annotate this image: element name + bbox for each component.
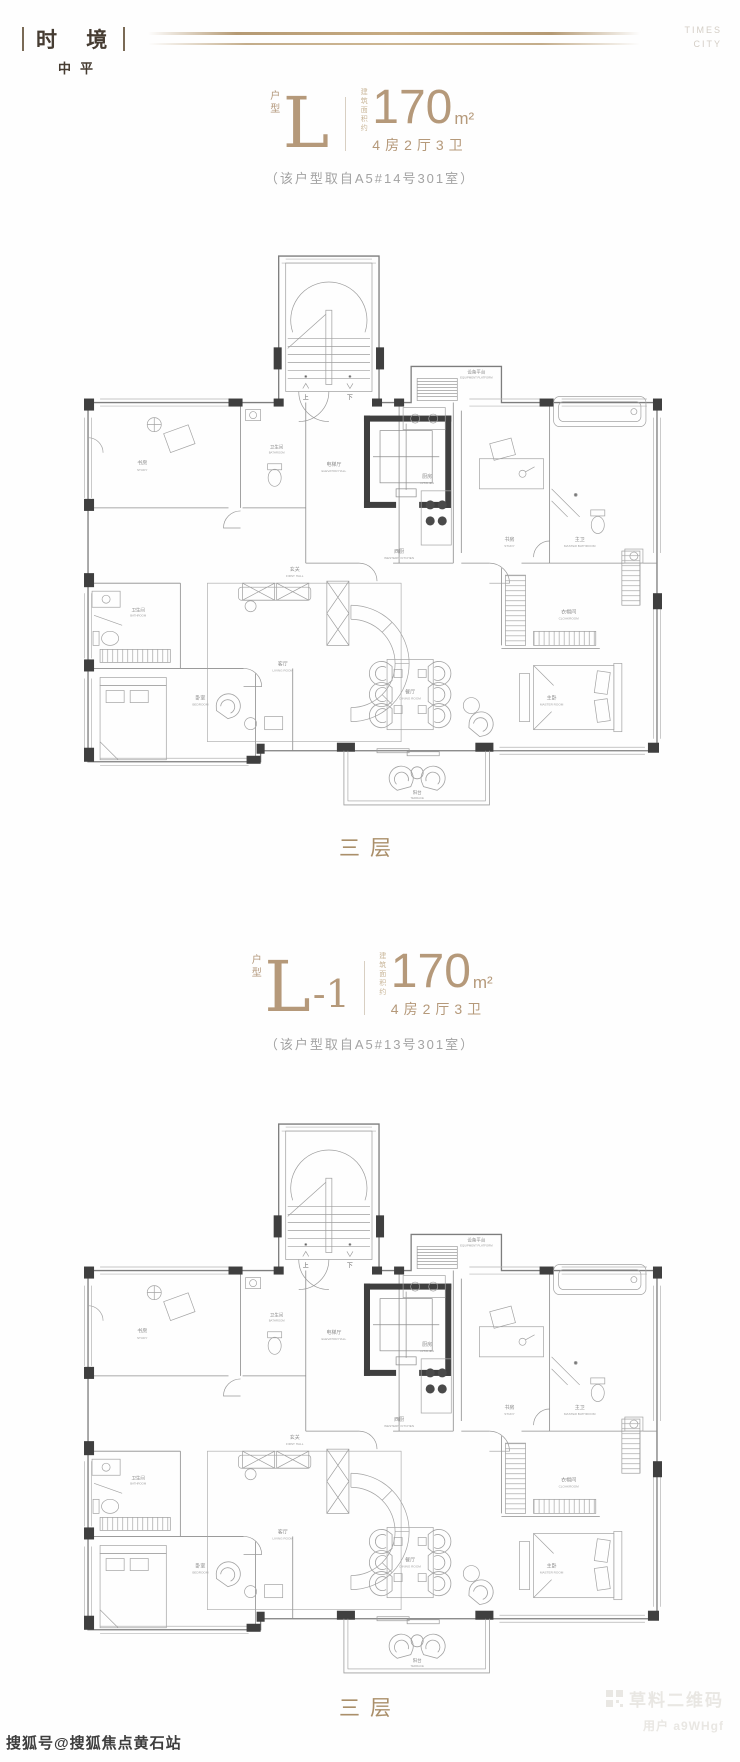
unit-l-note: （该户型取自A5#14号301室） bbox=[0, 168, 740, 187]
rooms-summary: 4房2厅3卫 bbox=[391, 999, 486, 1019]
area-value: 170 bbox=[391, 950, 471, 993]
floorplan-l1 bbox=[80, 1120, 662, 1687]
sohu-watermark: 搜狐号@搜狐焦点黄石站 bbox=[6, 1732, 182, 1753]
unit-l-title: 户型 L 建筑面积约 170 m² 4房2厅3卫 bbox=[0, 86, 740, 155]
logo-left-bar bbox=[22, 27, 24, 51]
title-divider bbox=[345, 97, 346, 151]
brand-english: TIMES CITY bbox=[684, 24, 722, 51]
area-unit: m² bbox=[473, 974, 493, 991]
unit-name-suffix: -1 bbox=[313, 975, 350, 1013]
area-prefix: 建筑面积约 bbox=[358, 86, 368, 133]
logo-right-bar bbox=[123, 27, 125, 51]
qr-brand-text: 草料二维码 bbox=[629, 1686, 724, 1711]
unit-l1-title: 户型 L -1 建筑面积约 170 m² 4房2厅3卫 bbox=[0, 950, 740, 1019]
area-unit: m² bbox=[454, 110, 474, 127]
area-value: 170 bbox=[372, 86, 452, 129]
qr-watermark: 草料二维码 用户 a9WHgf bbox=[606, 1686, 724, 1734]
qr-user-text: 用户 a9WHgf bbox=[606, 1717, 724, 1734]
decorative-lines bbox=[148, 32, 640, 45]
qr-grid-icon bbox=[606, 1690, 623, 1707]
title-divider bbox=[364, 961, 365, 1015]
unit-prefix: 户型 bbox=[266, 86, 281, 116]
unit-l1-note: （该户型取自A5#13号301室） bbox=[0, 1034, 740, 1053]
brand-english-line2: CITY bbox=[684, 38, 722, 52]
unit-name: L bbox=[264, 955, 310, 1019]
unit-name: L bbox=[283, 91, 329, 155]
floorplan-l bbox=[80, 252, 662, 819]
unit-prefix: 户型 bbox=[247, 950, 262, 980]
floor-label-1: 三层 bbox=[0, 832, 740, 862]
area-prefix: 建筑面积约 bbox=[377, 950, 387, 997]
logo-subtitle: 中平 bbox=[58, 58, 102, 77]
rooms-summary: 4房2厅3卫 bbox=[372, 135, 467, 155]
logo-text: 时 境 bbox=[36, 24, 119, 54]
brand-logo: 时 境 bbox=[22, 24, 125, 54]
brand-english-line1: TIMES bbox=[684, 24, 722, 38]
